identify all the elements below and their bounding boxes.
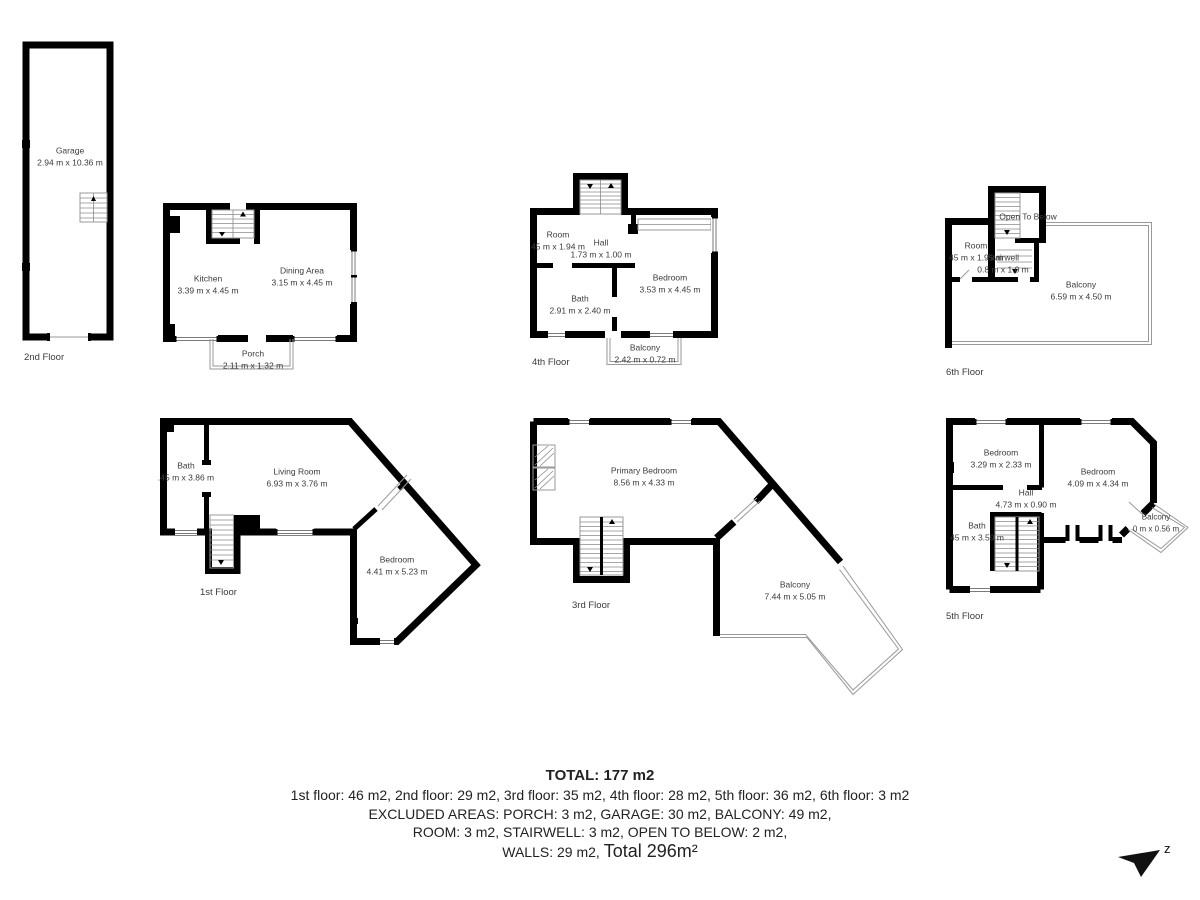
room-label-f3-balcony: Balcony 7.44 m x 5.05 m: [765, 580, 826, 603]
sixth-floor-walls: [940, 180, 1160, 360]
room-label-garage: Garage 2.94 m x 10.36 m: [37, 146, 103, 169]
room-label-porch: Porch 2.11 m x 1.32 m: [223, 349, 283, 372]
balcony-door-opening: [605, 331, 621, 338]
floor-label-1st: 1st Floor: [200, 587, 237, 598]
fifth-floor-plan: Bedroom 3.29 m x 2.33 m Bedroom 4.09 m x…: [935, 405, 1195, 625]
first-floor-plan: Bath .45 m x 3.86 m Living Room 6.93 m x…: [155, 405, 485, 655]
floor-label-2nd: 2nd Floor: [24, 352, 64, 363]
area-summary: TOTAL: 177 m2 1st floor: 46 m2, 2nd floo…: [0, 766, 1200, 861]
room-label-f5-hall: Hall 4.73 m x 0.90 m: [996, 488, 1057, 511]
window: [1079, 418, 1113, 425]
window: [567, 418, 592, 425]
sixth-floor-plan: Open To Below Room 45 m x 1.95 m Stairwe…: [940, 180, 1160, 360]
window: [548, 331, 565, 338]
window: [974, 418, 1008, 425]
window: [970, 586, 990, 593]
room-label-f4-bedroom: Bedroom 3.53 m x 4.45 m: [640, 273, 701, 296]
floor-label-6th: 6th Floor: [946, 367, 984, 378]
room-label-f4-balcony: Balcony 2.42 m x 0.72 m: [615, 343, 676, 366]
summary-walls-prefix: WALLS: 29 m2,: [502, 844, 603, 860]
floor-label-4th: 4th Floor: [532, 357, 570, 368]
room-label-f1-living: Living Room 6.93 m x 3.76 m: [267, 467, 328, 490]
summary-walls: WALLS: 29 m2, Total 296m²: [0, 842, 1200, 862]
summary-floors: 1st floor: 46 m2, 2nd floor: 29 m2, 3rd …: [0, 786, 1200, 805]
north-arrow-icon: [1108, 833, 1198, 888]
floorplan-sheet: Garage 2.94 m x 10.36 m 2nd Floor: [0, 0, 1200, 900]
window: [650, 331, 673, 338]
room-label-f4-hall: Hall 1.73 m x 1.00 m: [571, 238, 632, 261]
floor-label-5th: 5th Floor: [946, 611, 984, 622]
window: [174, 335, 219, 342]
third-floor-walls: [520, 405, 940, 715]
room-label-f5-balcony: Balcony 0 m x 0.56 m: [1133, 512, 1179, 535]
first-floor-walls: [155, 405, 485, 655]
summary-excluded-2: ROOM: 3 m2, STAIRWELL: 3 m2, OPEN TO BEL…: [0, 823, 1200, 842]
room-label-dining: Dining Area 3.15 m x 4.45 m: [272, 266, 333, 289]
room-label-f4-bath: Bath 2.91 m x 2.40 m: [550, 294, 611, 317]
fourth-floor-plan: Room 45 m x 1.94 m Hall 1.73 m x 1.00 m …: [528, 170, 728, 375]
room-label-kitchen: Kitchen 3.39 m x 4.45 m: [178, 274, 239, 297]
compass: z: [1108, 833, 1198, 888]
room-label-f5-bath: Bath 45 m x 3.59 m: [950, 521, 1004, 544]
room-label-f6-open: Open To Below: [999, 211, 1057, 223]
floor-label-3rd: 3rd Floor: [572, 600, 610, 611]
summary-total: TOTAL: 177 m2: [0, 766, 1200, 786]
room-label-f6-balcony: Balcony 6.59 m x 4.50 m: [1051, 280, 1112, 303]
room-label-f6-stairwell: Stairwell 0.8 m x 1.0 m: [977, 253, 1029, 276]
room-label-f3-primary: Primary Bedroom 8.56 m x 4.33 m: [611, 466, 677, 489]
room-label-f5-bedroom2: Bedroom 4.09 m x 4.34 m: [1068, 467, 1129, 490]
garage-plan-walls: [20, 40, 120, 355]
room-label-f1-bath: Bath .45 m x 3.86 m: [158, 461, 214, 484]
window: [380, 638, 394, 645]
window: [711, 216, 718, 254]
window: [669, 418, 694, 425]
third-floor-plan: Primary Bedroom 8.56 m x 4.33 m Balcony …: [520, 405, 940, 715]
window: [292, 335, 338, 342]
summary-grand-total: Total 296m²: [604, 841, 698, 861]
window: [275, 528, 315, 535]
garage-plan: Garage 2.94 m x 10.36 m: [20, 40, 120, 355]
window: [350, 249, 357, 305]
porch-door-opening: [248, 335, 266, 342]
summary-excluded-1: EXCLUDED AREAS: PORCH: 3 m2, GARAGE: 30 …: [0, 805, 1200, 824]
compass-letter: z: [1164, 841, 1171, 856]
room-label-f5-bedroom1: Bedroom 3.29 m x 2.33 m: [971, 448, 1032, 471]
second-floor-plan: Kitchen 3.39 m x 4.45 m Dining Area 3.15…: [160, 198, 360, 378]
room-label-f1-bedroom: Bedroom 4.41 m x 5.23 m: [367, 555, 428, 578]
window: [175, 528, 197, 535]
